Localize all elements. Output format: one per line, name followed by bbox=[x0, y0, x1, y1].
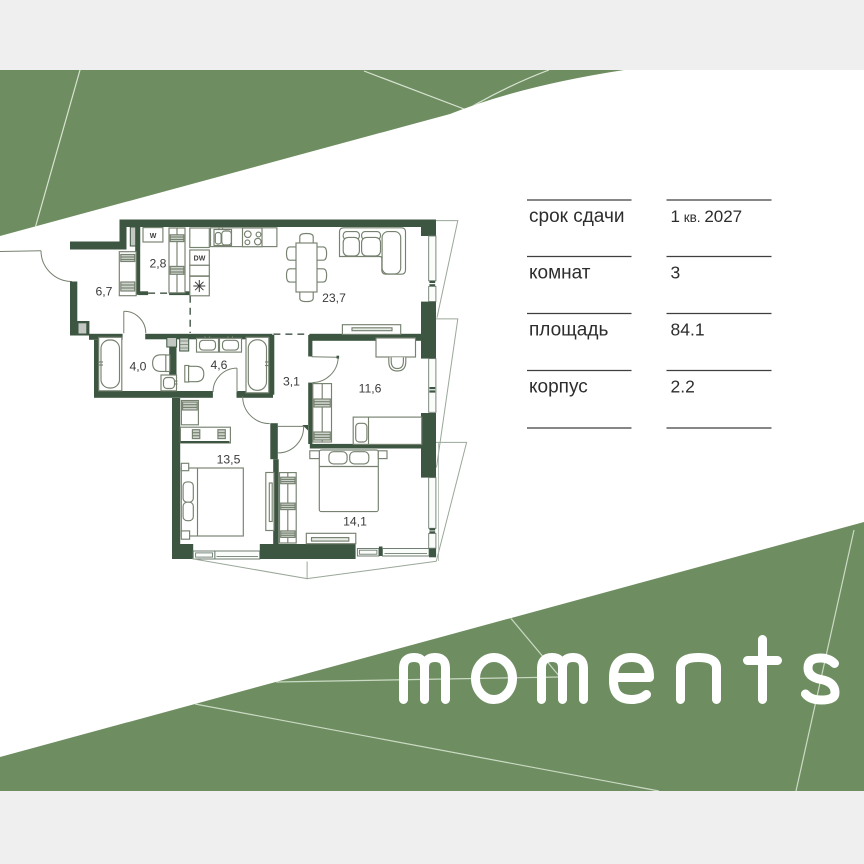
svg-text:6,7: 6,7 bbox=[96, 285, 113, 299]
svg-text:W: W bbox=[150, 233, 157, 240]
svg-text:3,1: 3,1 bbox=[283, 375, 300, 389]
svg-text:площадь: площадь bbox=[529, 320, 608, 341]
svg-text:DW: DW bbox=[194, 256, 206, 263]
svg-text:11,6: 11,6 bbox=[359, 382, 382, 396]
svg-text:3: 3 bbox=[671, 263, 681, 283]
svg-text:2.2: 2.2 bbox=[671, 377, 695, 397]
svg-text:14,1: 14,1 bbox=[343, 515, 367, 529]
svg-text:1 кв. 2027: 1 кв. 2027 bbox=[671, 207, 743, 226]
svg-text:13,5: 13,5 bbox=[217, 453, 241, 467]
svg-text:23,7: 23,7 bbox=[322, 291, 346, 305]
svg-text:4,0: 4,0 bbox=[130, 360, 147, 374]
svg-text:срок сдачи: срок сдачи bbox=[529, 206, 624, 227]
svg-text:84.1: 84.1 bbox=[671, 320, 705, 340]
svg-text:корпус: корпус bbox=[529, 377, 588, 398]
svg-text:4,6: 4,6 bbox=[211, 358, 228, 372]
svg-text:2,8: 2,8 bbox=[150, 257, 167, 271]
svg-text:комнат: комнат bbox=[529, 263, 591, 284]
